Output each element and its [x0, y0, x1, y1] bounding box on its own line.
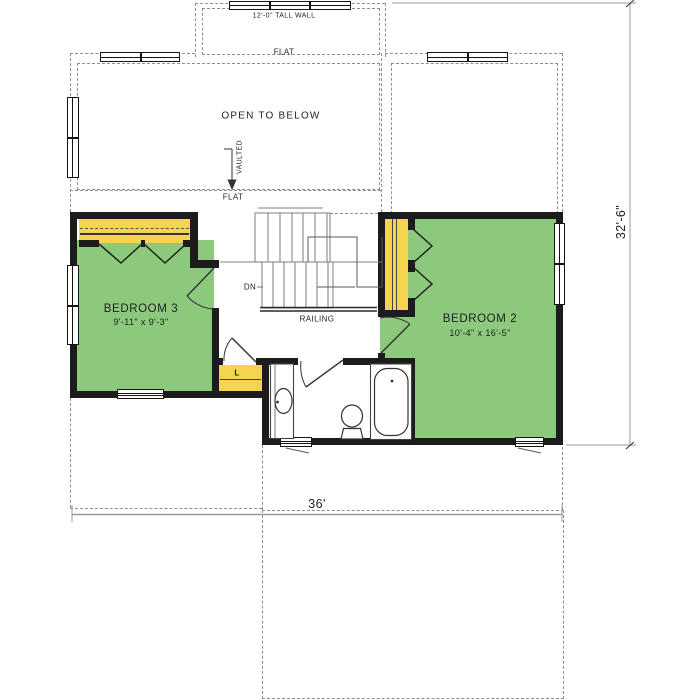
window — [67, 265, 79, 345]
dashed-right-section-inner — [391, 63, 558, 214]
floor-plan-canvas: 12'-0" TALL WALL FLAT OPEN TO BELOW VAUL… — [0, 0, 700, 700]
staircase — [220, 208, 382, 308]
dashed-open-below-inner — [77, 63, 380, 190]
flat-label-lower: FLAT — [223, 193, 244, 202]
closet2-rod-line-b — [396, 216, 397, 310]
dashed-mid-edge — [381, 53, 382, 212]
wall-segment — [312, 438, 516, 445]
wall-segment — [408, 358, 415, 445]
width-dimension: 36' — [308, 497, 326, 511]
bathroom-vanity-sink — [271, 364, 294, 439]
window — [117, 389, 164, 399]
window — [515, 437, 544, 447]
window — [280, 437, 312, 447]
dashed-stairwell-top — [330, 213, 378, 214]
wall-segment — [378, 212, 385, 317]
dashed-flat-line — [70, 190, 381, 191]
closet2-rod-line-a — [392, 216, 393, 310]
dashed-lower-right — [562, 447, 563, 510]
wall-segment — [190, 212, 198, 260]
bathtub — [371, 364, 412, 440]
wall-segment — [378, 310, 415, 317]
wall-segment — [378, 353, 385, 365]
linen-label: L — [234, 369, 239, 378]
window — [67, 97, 79, 178]
wall-segment — [378, 212, 563, 219]
wall-segment — [70, 212, 77, 265]
dashed-right-edge — [562, 53, 563, 212]
wall-segment — [219, 358, 223, 365]
dashed-lower-floor-outline — [262, 510, 564, 699]
wall-segment — [408, 219, 415, 230]
bedroom2-name: BEDROOM 2 — [443, 313, 517, 325]
tall-wall-label: 12'-0" TALL WALL — [253, 13, 316, 20]
linen-door — [224, 338, 256, 362]
window — [554, 223, 565, 305]
wall-segment — [141, 240, 145, 247]
wall-segment — [79, 240, 99, 247]
window — [229, 1, 351, 10]
toilet — [341, 405, 363, 439]
linen-closet — [219, 365, 262, 391]
railing-label: RAILING — [300, 315, 335, 324]
bathroom-door — [301, 360, 343, 387]
bedroom2-size: 10'-4" x 16'-5" — [449, 328, 510, 338]
closet-rod-line — [80, 233, 189, 235]
dashed-lower-left — [70, 398, 71, 508]
dashed-lower-mid — [262, 445, 263, 510]
window — [100, 52, 180, 62]
linen-shelf-line — [220, 379, 261, 380]
window-sill-tick — [286, 448, 541, 453]
dashed-bumpout-right — [385, 3, 386, 57]
wall-segment — [183, 240, 190, 247]
stair-railing — [257, 287, 377, 311]
dashed-lower-left-bottom — [70, 508, 262, 509]
down-label: DN — [244, 283, 256, 292]
dashed-bumpout-left — [195, 3, 196, 57]
wall-segment — [70, 212, 197, 219]
wall-segment — [212, 308, 219, 398]
bedroom3-size: 9'-11" x 9'-3" — [113, 317, 168, 327]
bedroom3-name: BEDROOM 3 — [104, 303, 178, 315]
wall-segment — [408, 260, 415, 272]
open-to-below-label: OPEN TO BELOW — [221, 111, 320, 122]
wall-segment — [269, 358, 298, 365]
vaulted-label: VAULTED — [237, 140, 244, 174]
wall-segment — [556, 212, 563, 223]
wall-segment — [408, 298, 415, 310]
depth-dimension: 32'-6" — [614, 205, 628, 239]
wall-segment — [269, 438, 280, 445]
wall-segment — [190, 260, 219, 268]
flat-label-upper: FLAT — [274, 48, 295, 57]
window — [427, 52, 508, 62]
wall-segment — [262, 358, 269, 445]
closet-shelf-dashed — [80, 228, 189, 229]
wall-segment — [556, 303, 563, 445]
wall-segment — [70, 391, 118, 398]
